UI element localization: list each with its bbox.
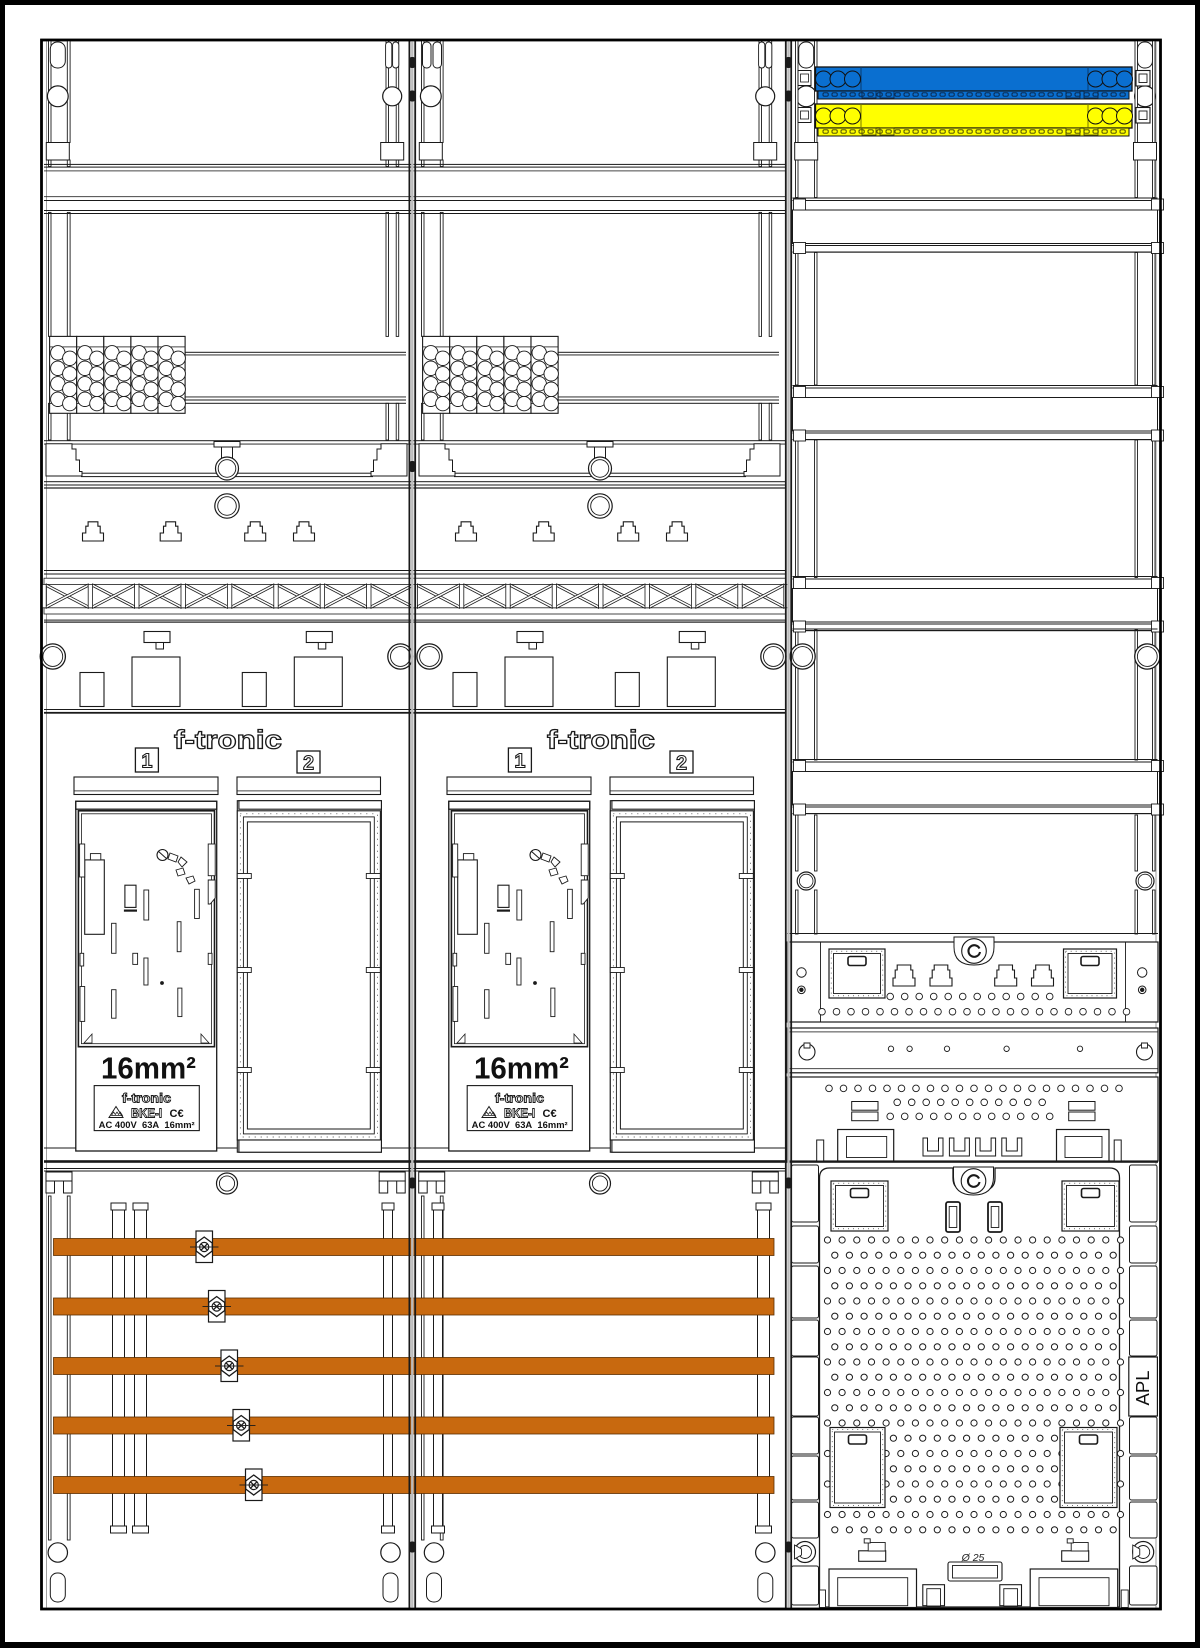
svg-text:1: 1 — [514, 751, 525, 773]
svg-text:APL: APL — [1132, 1371, 1153, 1406]
svg-text:16mm²: 16mm² — [101, 1051, 196, 1086]
svg-text:AC 400V 63A 16mm²: AC 400V 63A 16mm² — [472, 1120, 568, 1130]
svg-text:f-tronic: f-tronic — [547, 725, 655, 755]
svg-text:16mm²: 16mm² — [474, 1051, 569, 1086]
svg-text:f-tronic: f-tronic — [122, 1092, 171, 1106]
svg-text:C€: C€ — [543, 1108, 557, 1120]
svg-text:BKE-I: BKE-I — [131, 1107, 162, 1121]
svg-text:f-tronic: f-tronic — [495, 1092, 544, 1106]
svg-text:AC 400V 63A 16mm²: AC 400V 63A 16mm² — [99, 1120, 195, 1130]
svg-text:2: 2 — [303, 753, 314, 775]
svg-text:f-tronic: f-tronic — [174, 725, 282, 755]
svg-text:1: 1 — [141, 751, 152, 773]
svg-text:BKE-I: BKE-I — [504, 1107, 535, 1121]
svg-text:2: 2 — [676, 753, 687, 775]
svg-text:C€: C€ — [170, 1108, 184, 1120]
